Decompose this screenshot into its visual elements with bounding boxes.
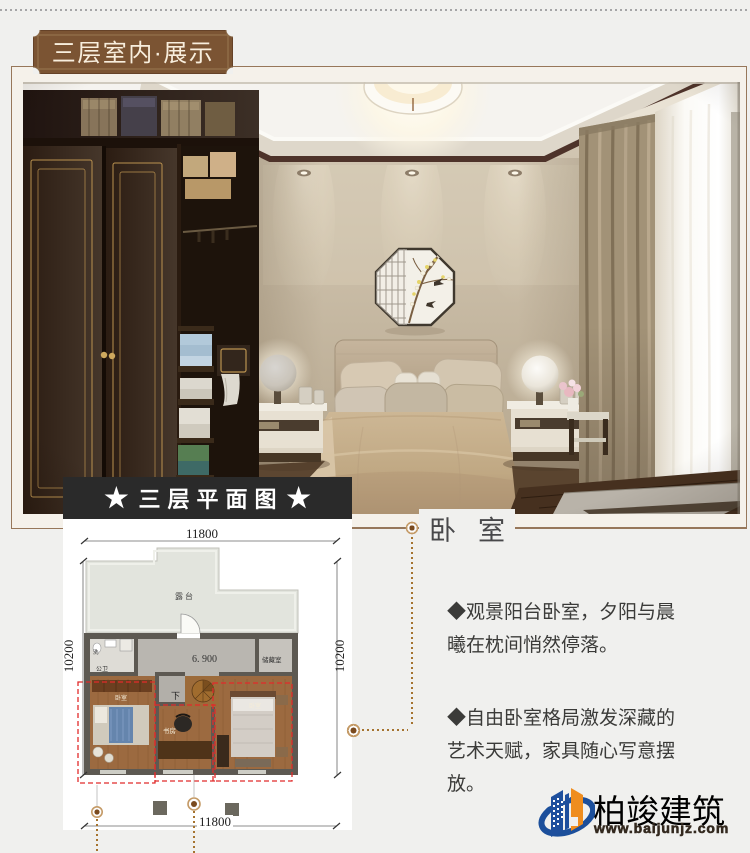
svg-text:6. 900: 6. 900 <box>192 654 217 665</box>
svg-text:10200: 10200 <box>63 640 76 673</box>
svg-text:三层室内·展示: 三层室内·展示 <box>52 40 215 67</box>
svg-text:11800: 11800 <box>199 814 231 829</box>
svg-text:10200: 10200 <box>332 640 347 673</box>
svg-text:书房: 书房 <box>163 726 176 735</box>
svg-text:露台: 露台 <box>175 591 195 601</box>
svg-text:公卫: 公卫 <box>96 666 108 673</box>
svg-text:11800: 11800 <box>186 526 218 541</box>
svg-text:储藏室: 储藏室 <box>262 655 282 664</box>
svg-text:洗: 洗 <box>93 648 99 656</box>
svg-text:卧室: 卧室 <box>249 702 261 710</box>
svg-text:下: 下 <box>171 691 180 701</box>
svg-text:卧室: 卧室 <box>115 694 127 702</box>
